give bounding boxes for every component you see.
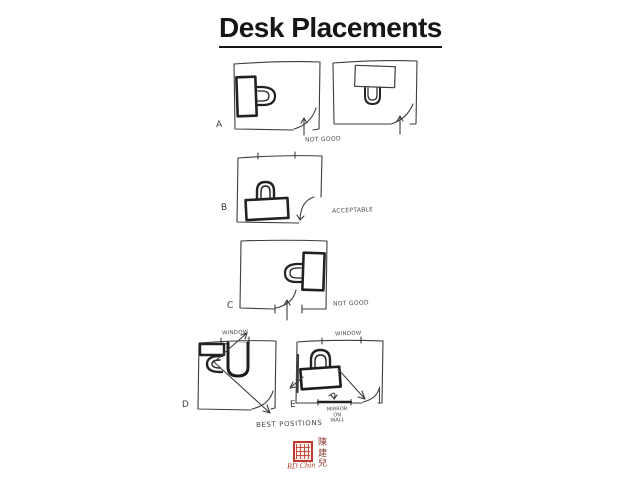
door-arc	[363, 389, 379, 402]
diagram-label-a: A	[216, 120, 223, 130]
desk	[300, 367, 340, 390]
desk-top	[200, 344, 224, 355]
chair-inner	[258, 91, 269, 101]
door-swing-arrow	[297, 197, 314, 220]
chinese-char-3: 兒	[318, 459, 327, 470]
romanized-name: RD Chin	[287, 460, 316, 470]
seal-pattern	[296, 444, 310, 459]
entry-arrow	[301, 118, 307, 135]
door-ticks	[275, 305, 302, 313]
chair-outer	[285, 264, 302, 282]
chinese-name-column: 陳 建 兒	[318, 438, 327, 470]
chair-inner	[368, 88, 377, 100]
room-e	[290, 337, 383, 405]
desk	[236, 77, 256, 117]
chair-inner	[290, 268, 301, 278]
room-a-right	[333, 61, 417, 134]
room-d	[198, 333, 276, 413]
diagram-label-b: B	[221, 203, 228, 213]
room-c	[240, 240, 327, 320]
chair-outer	[311, 350, 330, 369]
desk	[246, 198, 289, 220]
diagram-label-c: C	[227, 301, 234, 311]
diagram-label-e: E	[290, 400, 296, 410]
room-b	[237, 152, 322, 223]
slide-canvas: Desk Placements	[0, 0, 640, 480]
desk-side	[228, 343, 248, 376]
door-arc	[294, 108, 316, 129]
mirror-label: MIRROR ON WALL	[326, 407, 349, 424]
desk-placement-sketch	[0, 0, 640, 480]
desk	[355, 65, 396, 87]
entry-arrow	[397, 116, 403, 134]
window-label-e: WINDOW	[335, 330, 362, 337]
desk	[302, 253, 324, 291]
left-wall-window	[298, 355, 299, 392]
annotation-acceptable: ACCEPTABLE	[332, 206, 374, 214]
chair-outer	[257, 87, 275, 105]
door-arc	[276, 290, 296, 308]
annotation-not-good-a: NOT GOOD	[305, 135, 341, 143]
window-label-d: WINDOW	[222, 329, 249, 336]
door-arc	[391, 104, 413, 124]
chinese-char-1: 陳	[318, 438, 327, 449]
mirror-label-line3: WALL	[326, 418, 348, 424]
diagram-label-d: D	[182, 400, 189, 410]
seal-stamp	[293, 441, 313, 462]
room-a-left	[234, 62, 320, 135]
chair-outer	[365, 88, 380, 104]
chinese-char-2: 建	[318, 449, 327, 460]
mirror-pointer-arrow	[329, 393, 337, 399]
annotation-not-good-c: NOT GOOD	[333, 299, 369, 307]
chair-outer	[207, 356, 222, 372]
entry-arrow	[284, 300, 290, 320]
